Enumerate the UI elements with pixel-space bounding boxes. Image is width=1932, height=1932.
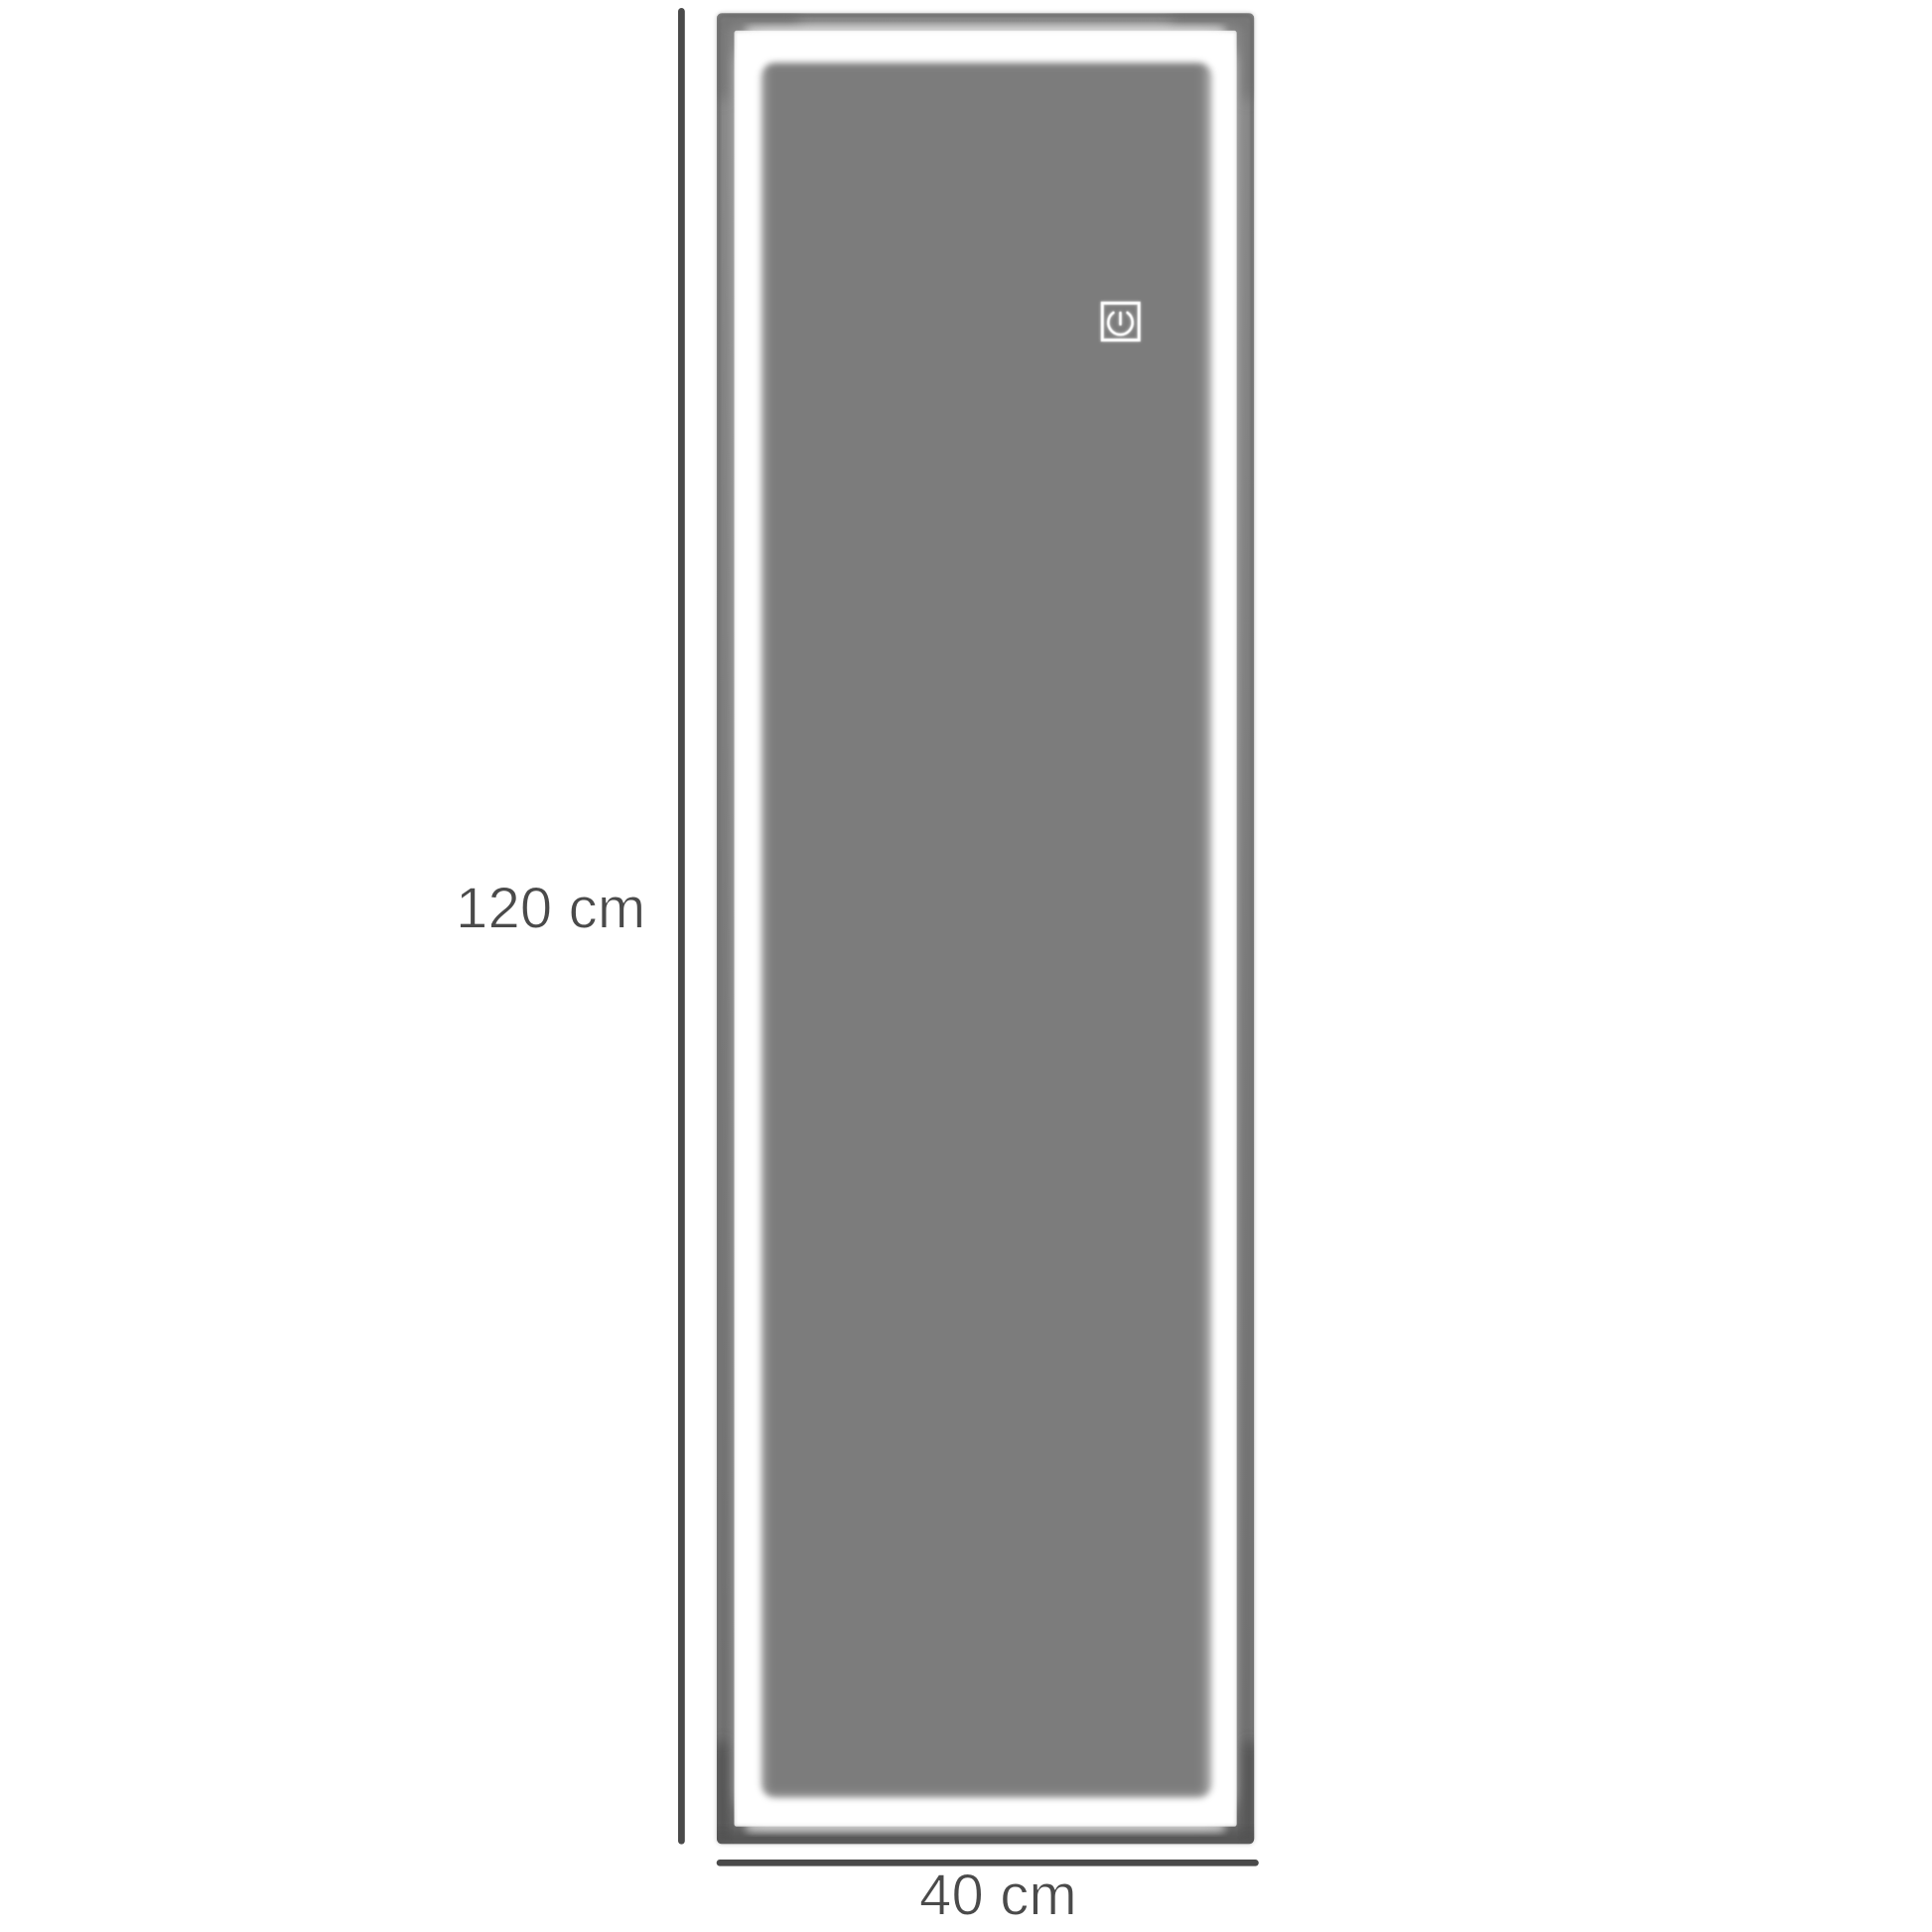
svg-text:40 cm: 40 cm [919, 1863, 1077, 1927]
svg-text:120 cm: 120 cm [456, 877, 645, 941]
